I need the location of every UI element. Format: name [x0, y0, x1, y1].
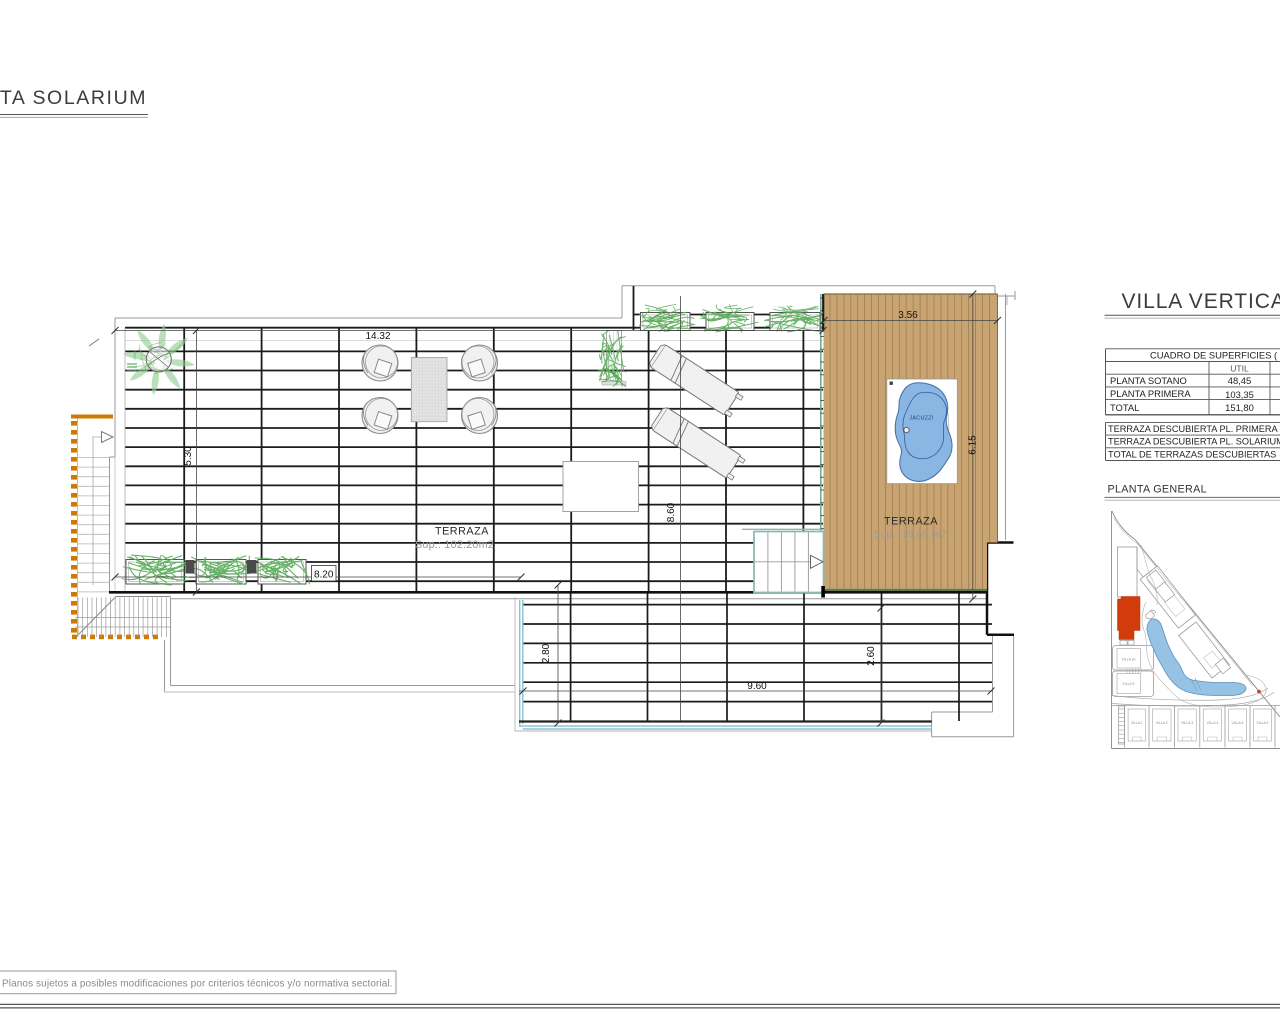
svg-text:8.60: 8.60 [666, 502, 677, 522]
svg-text:VILLA 2: VILLA 2 [1156, 721, 1168, 725]
svg-text:VILLA 1: VILLA 1 [1131, 721, 1143, 725]
svg-text:VILLA 9: VILLA 9 [1123, 682, 1135, 686]
svg-text:48,45: 48,45 [1228, 375, 1251, 386]
svg-text:14.32: 14.32 [365, 331, 390, 342]
svg-text:Sup.: 102.20m2: Sup.: 102.20m2 [415, 539, 494, 551]
svg-text:TOTAL DE TERRAZAS DESCUBIERTAS: TOTAL DE TERRAZAS DESCUBIERTAS [1108, 449, 1276, 459]
svg-text:Sup.: 19.60 m2: Sup.: 19.60 m2 [873, 530, 946, 541]
svg-text:VILLA VERTICAL: VILLA VERTICAL [1122, 290, 1280, 313]
svg-text:VILLA 5: VILLA 5 [1232, 721, 1244, 725]
svg-text:VILLA 6: VILLA 6 [1257, 721, 1269, 725]
svg-text:VILLA 3: VILLA 3 [1181, 721, 1193, 725]
svg-text:TERRAZA DESCUBIERTA PL. SOLARI: TERRAZA DESCUBIERTA PL. SOLARIUM [1108, 437, 1280, 447]
svg-text:151,80: 151,80 [1225, 402, 1254, 413]
svg-text:TERRAZA DESCUBIERTA PL. PRIMER: TERRAZA DESCUBIERTA PL. PRIMERA [1108, 424, 1279, 434]
svg-text:2.80: 2.80 [541, 643, 552, 663]
svg-text:103,35: 103,35 [1225, 389, 1254, 400]
svg-text:VILLA 10: VILLA 10 [1122, 658, 1136, 662]
svg-text:PLANTA SOLARIUM: PLANTA SOLARIUM [0, 87, 147, 109]
svg-text:UTIL: UTIL [1230, 364, 1249, 374]
svg-text:PLANTA PRIMERA: PLANTA PRIMERA [1110, 388, 1191, 399]
svg-text:VILLA 4: VILLA 4 [1206, 721, 1218, 725]
svg-text:9.60: 9.60 [747, 681, 767, 692]
svg-text:Planos sujetos a posibles modi: Planos sujetos a posibles modificaciones… [2, 979, 393, 990]
svg-text:CUADRO DE SUPERFICIES (: CUADRO DE SUPERFICIES ( [1150, 350, 1278, 361]
svg-text:TERRAZA: TERRAZA [884, 516, 938, 528]
svg-text:TERRAZA: TERRAZA [435, 526, 489, 538]
svg-text:8.20: 8.20 [314, 570, 334, 581]
svg-text:PLANTA SOTANO: PLANTA SOTANO [1110, 375, 1187, 386]
svg-text:JACUZZI: JACUZZI [909, 416, 933, 422]
svg-text:6.15: 6.15 [968, 435, 979, 455]
svg-text:3.56: 3.56 [898, 310, 918, 321]
svg-text:TOTAL: TOTAL [1110, 402, 1139, 413]
svg-text:5.30: 5.30 [183, 446, 194, 466]
svg-text:2.60: 2.60 [866, 646, 877, 666]
svg-text:PLANTA GENERAL: PLANTA GENERAL [1108, 484, 1207, 496]
